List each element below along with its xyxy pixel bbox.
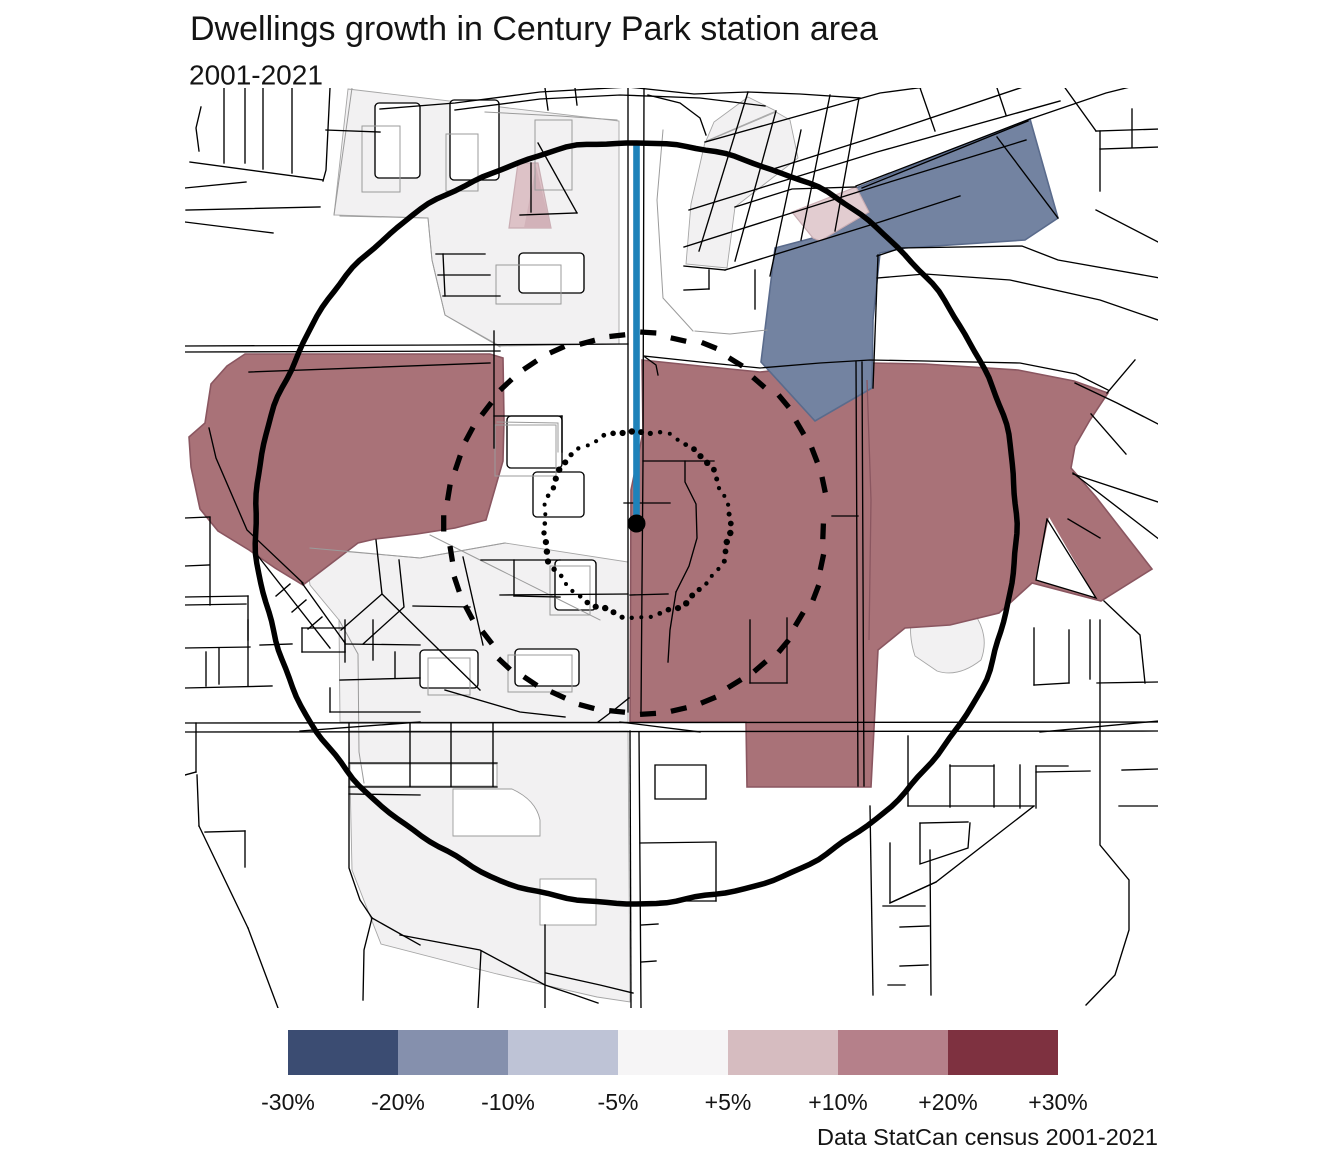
svg-text:+5%: +5% — [705, 1089, 752, 1115]
svg-text:-10%: -10% — [481, 1089, 535, 1115]
svg-text:+10%: +10% — [808, 1089, 867, 1115]
svg-text:-20%: -20% — [371, 1089, 425, 1115]
svg-text:+30%: +30% — [1028, 1089, 1087, 1115]
svg-text:-30%: -30% — [261, 1089, 315, 1115]
svg-text:+20%: +20% — [918, 1089, 977, 1115]
svg-text:2001-2021: 2001-2021 — [189, 60, 323, 91]
svg-text:-5%: -5% — [598, 1089, 639, 1115]
svg-text:Dwellings growth in Century Pa: Dwellings growth in Century Park station… — [190, 10, 878, 48]
svg-text:Data StatCan census 2001-2021: Data StatCan census 2001-2021 — [817, 1124, 1158, 1150]
